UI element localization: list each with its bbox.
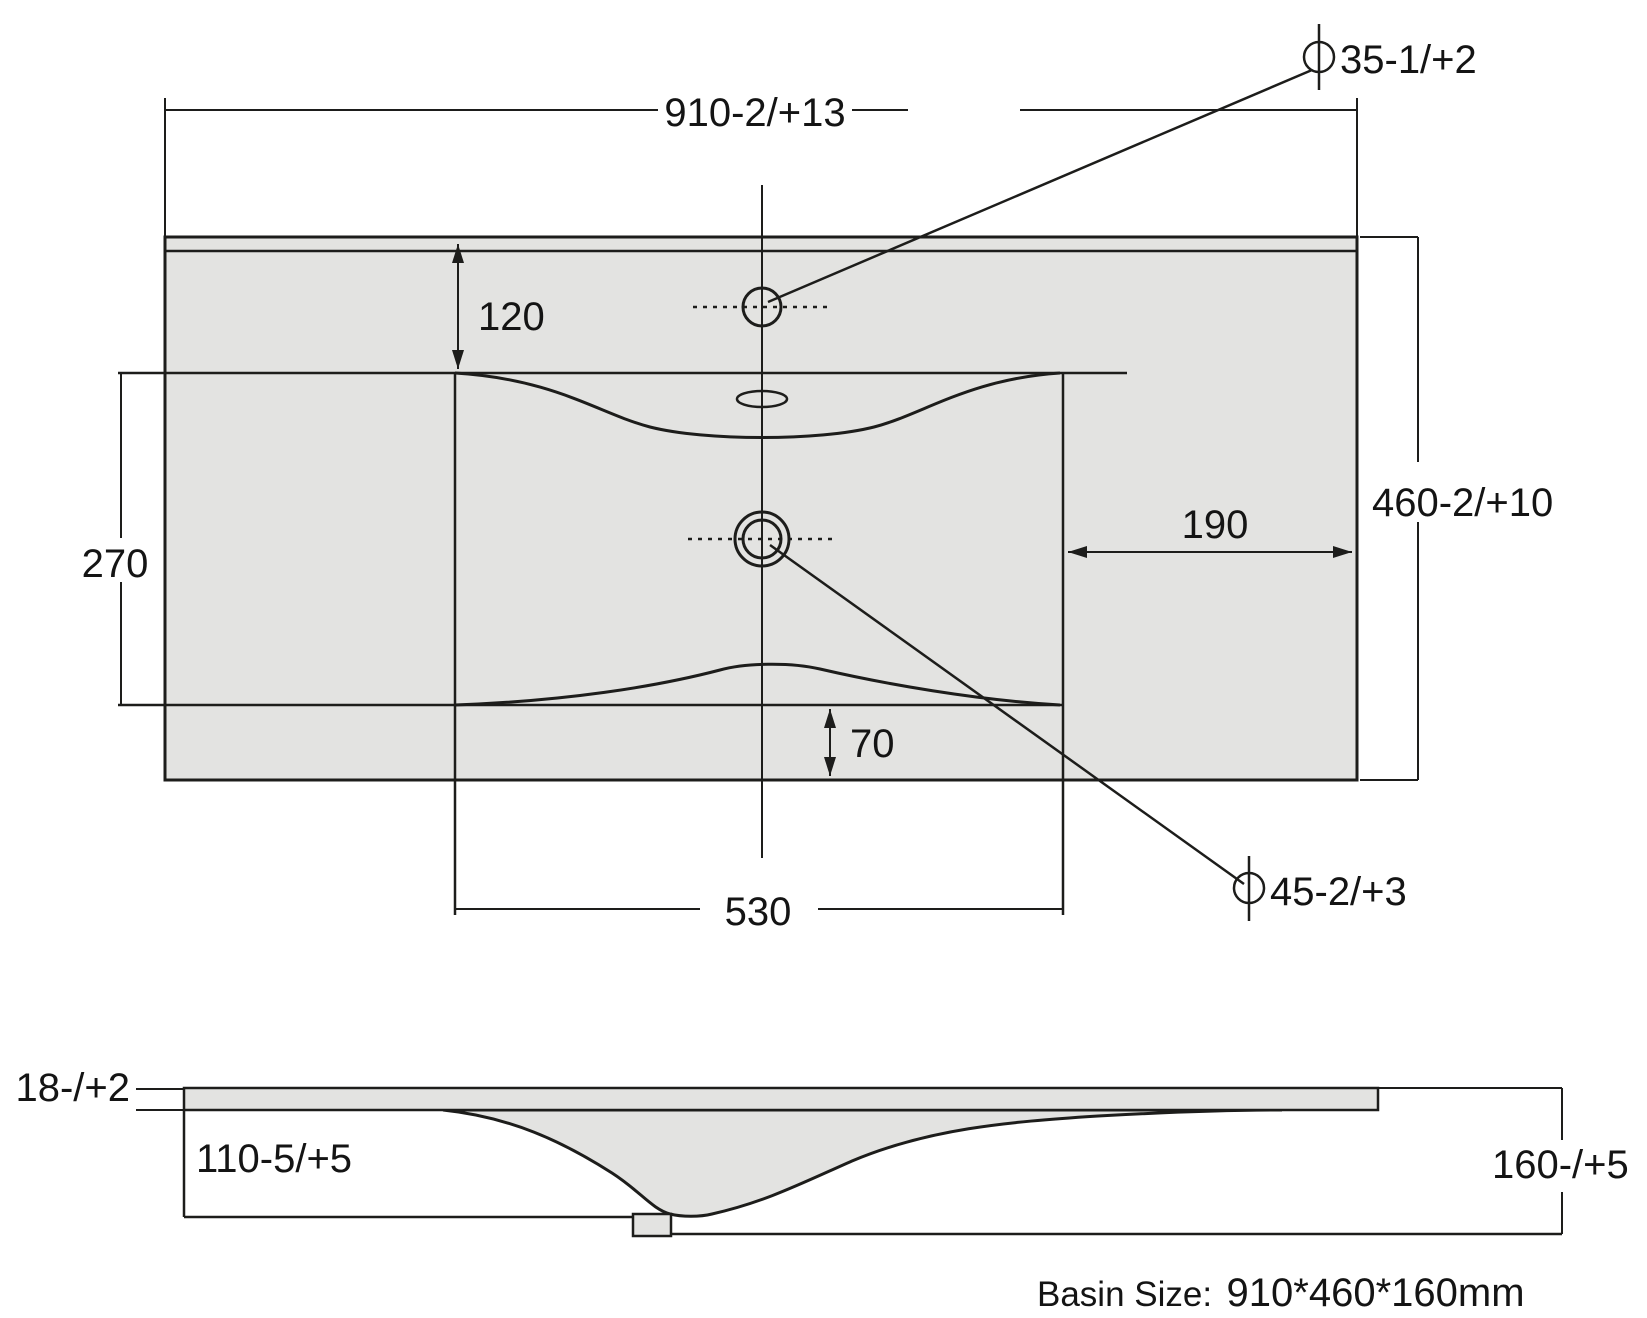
faucet-offset-dim-label: 120 [478,295,545,339]
deck-slab-section [184,1088,1378,1110]
drain-hole-dim-label: 45-2/+3 [1270,870,1407,914]
faucet-hole-dim-label: 35-1/+2 [1340,38,1477,82]
bowl-section [443,1110,1282,1216]
edge-height-dim-label: 110-5/+5 [196,1137,352,1181]
caption-label: Basin Size: [1037,1275,1212,1314]
diameter-symbol-icon [1234,856,1264,921]
top-view: 910-2/+13 460-2/+10 270 120 190 70 530 3… [82,24,1554,934]
caption-value: 910*460*160mm [1227,1271,1525,1315]
bowl-front-dim-label: 70 [850,722,895,766]
drain-edge-dim-label: 190 [1182,503,1249,547]
section-view: 18-/+2 110-5/+5 160-/+5 [15,1066,1628,1236]
diameter-symbol-icon [1304,24,1334,90]
thickness-dim-label: 18-/+2 [15,1066,130,1110]
basin-technical-drawing: 910-2/+13 460-2/+10 270 120 190 70 530 3… [0,0,1647,1318]
svg-text:Basin Size: 910*460*160m: Basin Size: 910*460*160mm [1037,1271,1525,1315]
bowl-width-dim-label: 530 [725,890,792,934]
width-dim-label: 910-2/+13 [664,91,845,135]
bowl-depth-dim-label: 270 [82,542,149,586]
caption: Basin Size: 910*460*160mm [1037,1271,1525,1315]
depth-dim-label: 460-2/+10 [1372,481,1553,525]
overall-height-dim-label: 160-/+5 [1492,1143,1629,1187]
drain-stub-section [633,1214,671,1236]
